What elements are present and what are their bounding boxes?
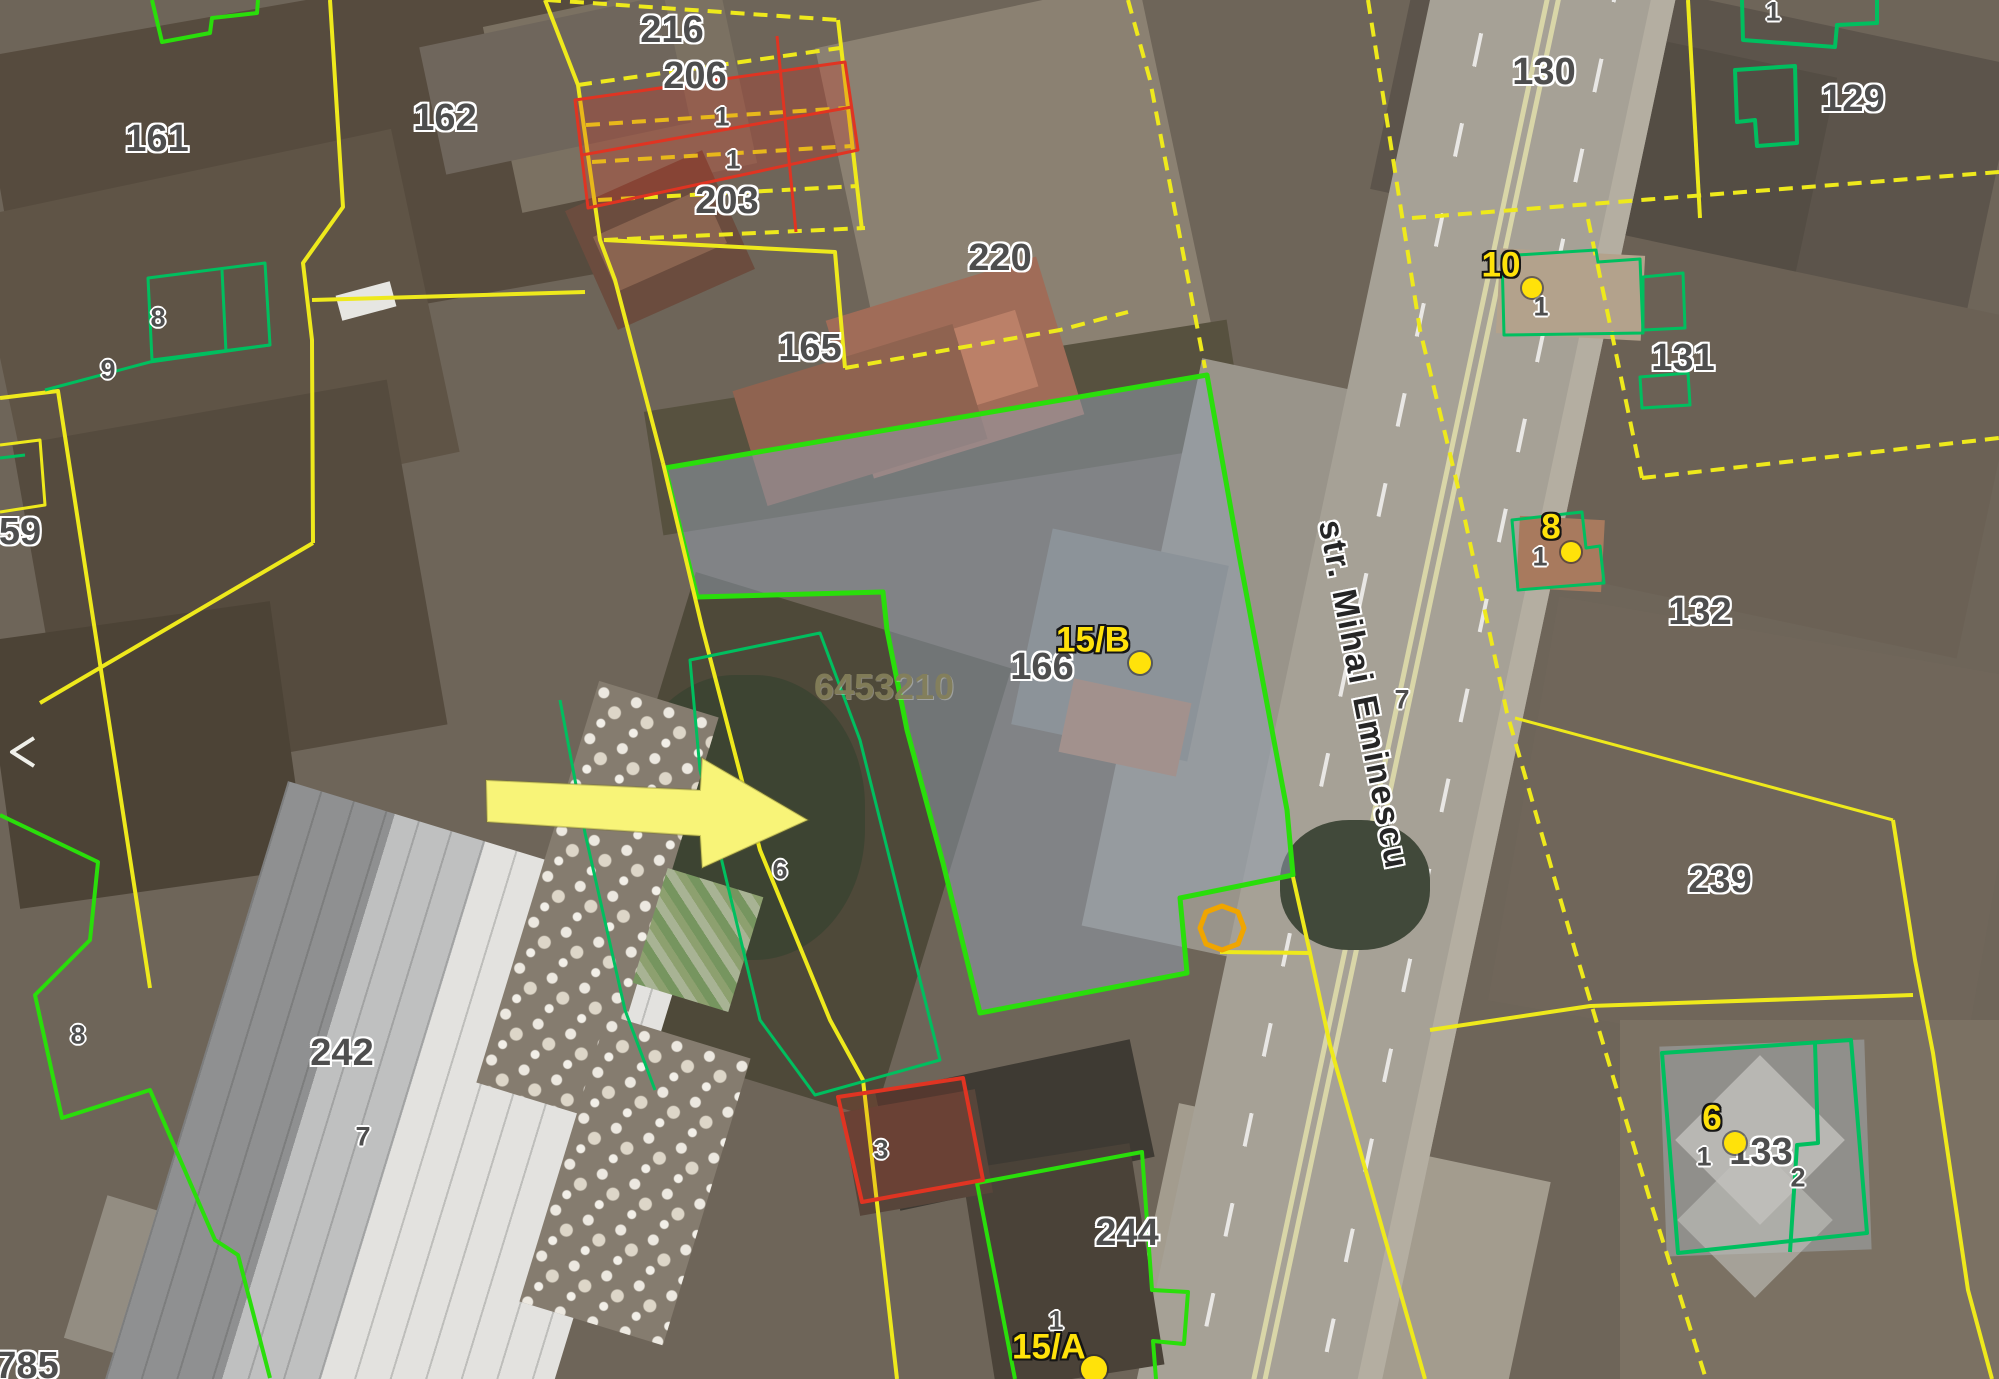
parcel-label-2: 2 bbox=[1790, 1165, 1805, 1192]
parcel-label-1: 1 bbox=[714, 104, 729, 131]
parcel-label-165: 165 bbox=[778, 329, 841, 367]
parcel-label-1: 1 bbox=[1696, 1144, 1711, 1171]
address-marker-label-15-B: 15/B bbox=[1056, 623, 1130, 658]
parcel-label-7: 7 bbox=[1394, 687, 1409, 714]
parcel-label-1: 1 bbox=[725, 147, 740, 174]
parcel-label-162: 162 bbox=[413, 99, 476, 137]
parcel-label-785: 785 bbox=[0, 1347, 59, 1379]
address-point-marker[interactable] bbox=[1522, 278, 1542, 298]
parcel-label-244: 244 bbox=[1095, 1214, 1158, 1252]
parcel-label-132: 132 bbox=[1668, 593, 1731, 631]
parcel-label-239: 239 bbox=[1688, 861, 1751, 899]
parcel-label-206: 206 bbox=[663, 57, 726, 95]
parcel-label-7: 7 bbox=[355, 1124, 370, 1151]
parcel-label-242: 242 bbox=[310, 1034, 373, 1072]
parcel-label-9: 9 bbox=[100, 357, 115, 384]
address-marker-label-6: 6 bbox=[1702, 1101, 1721, 1136]
parcel-label-59: 59 bbox=[0, 513, 41, 551]
parcel-label-8: 8 bbox=[70, 1022, 85, 1049]
parcel-label-220: 220 bbox=[968, 239, 1031, 277]
cadastral-map-view[interactable]: 6453210 str. Mihai Eminescu 161162216206… bbox=[0, 0, 1999, 1379]
parcel-label-1: 1 bbox=[1532, 544, 1547, 571]
parcel-label-216: 216 bbox=[640, 11, 703, 49]
address-marker-label-15-A: 15/A bbox=[1012, 1330, 1086, 1365]
parcel-label-161: 161 bbox=[125, 120, 188, 158]
map-labels-layer: 6453210 str. Mihai Eminescu 161162216206… bbox=[0, 0, 1999, 1379]
parcel-label-131: 131 bbox=[1651, 339, 1714, 377]
parcel-label-129: 129 bbox=[1821, 80, 1884, 118]
address-point-marker[interactable] bbox=[1129, 652, 1151, 674]
parcel-label-130: 130 bbox=[1512, 53, 1575, 91]
parcel-label-3: 3 bbox=[873, 1137, 888, 1164]
parcel-label-6: 6 bbox=[772, 857, 787, 884]
address-point-marker[interactable] bbox=[1081, 1356, 1107, 1379]
parcel-label-203: 203 bbox=[695, 182, 758, 220]
parcel-label-1: 1 bbox=[1533, 294, 1548, 321]
parcel-label-1: 1 bbox=[1765, 0, 1780, 26]
address-point-marker[interactable] bbox=[1724, 1132, 1746, 1154]
watermark-id: 6453210 bbox=[814, 666, 954, 708]
address-marker-label-8: 8 bbox=[1541, 510, 1560, 545]
address-point-marker[interactable] bbox=[1561, 542, 1581, 562]
parcel-label-8: 8 bbox=[150, 305, 165, 332]
address-marker-label-10: 10 bbox=[1482, 248, 1521, 283]
